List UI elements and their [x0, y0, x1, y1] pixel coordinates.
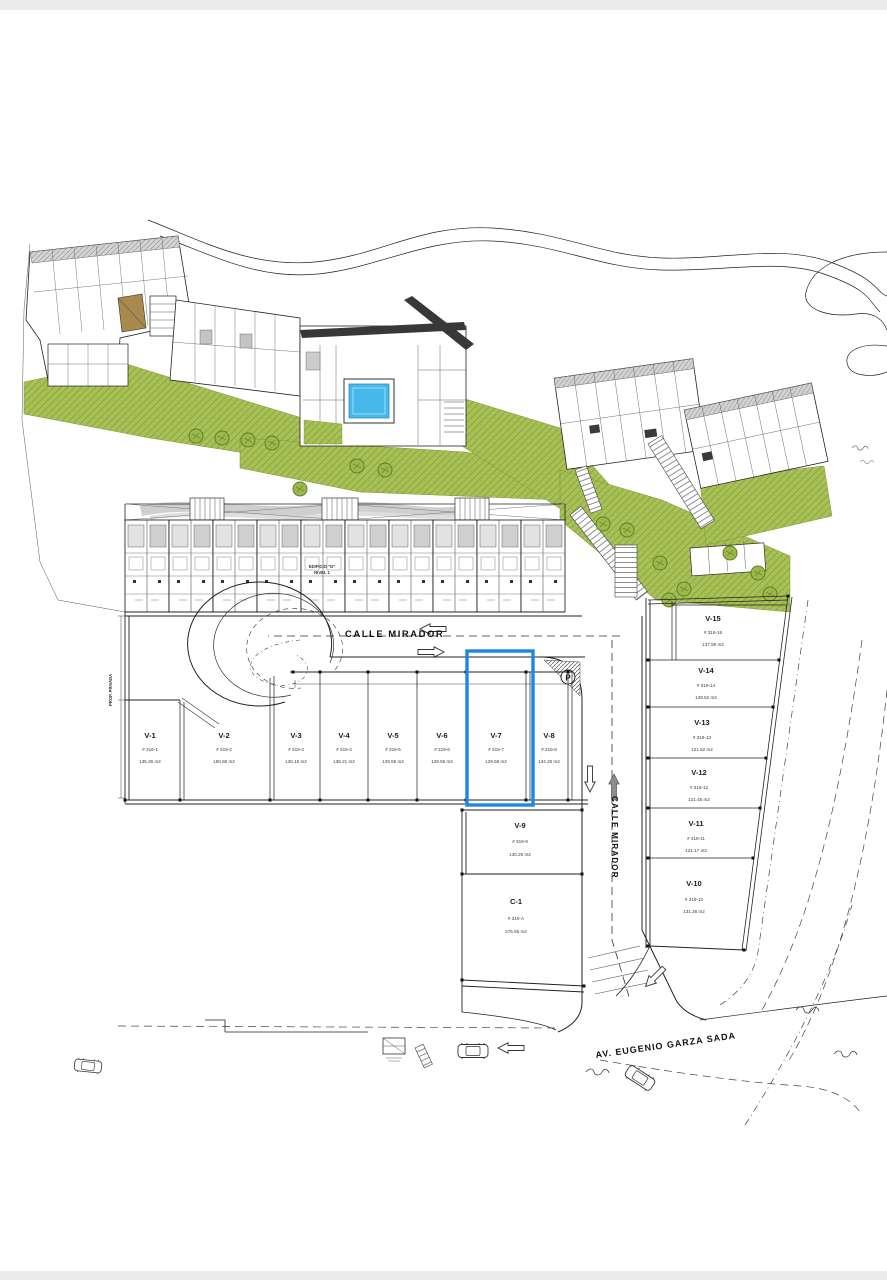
svg-text:# 319-9: # 319-9 [512, 839, 528, 844]
svg-text:# 319-12: # 319-12 [690, 785, 709, 790]
svg-text:138.21 m2: 138.21 m2 [333, 759, 355, 764]
letterbox-bars [0, 0, 887, 1280]
traffic-arrows [418, 624, 668, 1053]
lot-v1: V-1# 319-1135.36 m2 [139, 731, 161, 764]
svg-text:V-10: V-10 [686, 879, 701, 888]
lot-v10: V-10# 319-10131.36 m2 [683, 879, 705, 914]
building-left-wing [26, 236, 192, 386]
svg-text:137.59 m2: 137.59 m2 [702, 642, 724, 647]
svg-text:# 319-7: # 319-7 [488, 747, 504, 752]
lot-v9: V-9# 319-9130.25 m2 [509, 821, 531, 857]
lot-v7: V-7# 319-7129.59 m2 [485, 731, 507, 764]
svg-text:V-15: V-15 [705, 614, 720, 623]
arrow-downleft-icon [642, 964, 668, 990]
building-right-cluster-a [554, 359, 705, 470]
lot-v5: V-5# 319-5129.59 m2 [382, 731, 404, 764]
svg-text:# 319-3: # 319-3 [288, 747, 304, 752]
svg-text:# 319-1: # 319-1 [142, 747, 158, 752]
svg-text:V-1: V-1 [144, 731, 155, 740]
svg-text:V-5: V-5 [387, 731, 398, 740]
lot-v14: V-14# 319-14128.52 m2 [695, 666, 717, 700]
svg-text:# 319-10: # 319-10 [685, 897, 704, 902]
svg-text:# 319-2: # 319-2 [216, 747, 232, 752]
building-mid-left [170, 300, 300, 396]
svg-text:131.36 m2: 131.36 m2 [683, 909, 705, 914]
survey-dots [124, 595, 790, 988]
site-plan-drawing: EDIFICIO "D" NIVEL 1 P [0, 0, 887, 1280]
lot-c1: C-1# 319-A275.55 m2 [505, 897, 527, 934]
svg-text:# 319-4: # 319-4 [336, 747, 352, 752]
arrow-right-icon [418, 647, 444, 657]
svg-text:V-6: V-6 [436, 731, 447, 740]
lot-labels: V-1# 319-1135.36 m2 V-2# 319-2180.86 m2 … [139, 614, 724, 934]
calle-mirador-vertical-label: CALLE MIRADOR [610, 796, 619, 879]
car-icon [458, 1043, 488, 1059]
svg-text:129.59 m2: 129.59 m2 [485, 759, 507, 764]
svg-text:V-8: V-8 [543, 731, 554, 740]
lot-v3: V-3# 319-3130.15 m2 [285, 731, 307, 764]
lot-v2: V-2# 319-2180.86 m2 [213, 731, 235, 764]
svg-text:135.36 m2: 135.36 m2 [139, 759, 161, 764]
svg-text:129.59 m2: 129.59 m2 [382, 759, 404, 764]
lot-v6: V-6# 319-6129.59 m2 [431, 731, 453, 764]
svg-text:121.45 m2: 121.45 m2 [688, 797, 710, 802]
svg-text:V-13: V-13 [694, 718, 709, 727]
svg-text:180.86 m2: 180.86 m2 [213, 759, 235, 764]
vehicles [74, 1043, 657, 1093]
lot-v8: V-8# 319-8134.25 m2 [538, 731, 560, 764]
svg-text:# 319-5: # 319-5 [385, 747, 401, 752]
svg-text:121.17 m2: 121.17 m2 [685, 848, 707, 853]
lot-v15: V-15# 319-15137.59 m2 [702, 614, 724, 647]
svg-text:130.15 m2: 130.15 m2 [285, 759, 307, 764]
prop-privada-label: PROP. PRIVADA [108, 674, 113, 706]
lot-v4: V-4# 319-4138.21 m2 [333, 731, 355, 764]
arrow-down-icon [585, 766, 595, 792]
svg-text:V-11: V-11 [688, 819, 703, 828]
svg-text:# 319-11: # 319-11 [687, 836, 705, 841]
svg-text:130.25 m2: 130.25 m2 [509, 852, 531, 857]
svg-text:V-9: V-9 [514, 821, 525, 830]
svg-text:# 319-6: # 319-6 [434, 747, 450, 752]
svg-text:128.52 m2: 128.52 m2 [695, 695, 717, 700]
svg-text:134.25 m2: 134.25 m2 [538, 759, 560, 764]
lot-v12: V-12# 319-12121.45 m2 [688, 768, 710, 802]
calle-mirador-horizontal-label: CALLE MIRADOR [345, 629, 444, 640]
svg-text:V-14: V-14 [698, 666, 714, 675]
svg-text:# 319-15: # 319-15 [704, 630, 723, 635]
svg-text:# 319-13: # 319-13 [693, 735, 712, 740]
site-plan-page: EDIFICIO "D" NIVEL 1 P [0, 0, 887, 1280]
arrow-entry-icon [498, 1043, 524, 1053]
svg-text:V-3: V-3 [290, 731, 301, 740]
svg-text:EDIFICIO "D": EDIFICIO "D" [309, 564, 335, 569]
svg-text:NIVEL 1: NIVEL 1 [314, 570, 330, 575]
svg-text:V-7: V-7 [490, 731, 501, 740]
lot-v11: V-11# 319-11121.17 m2 [685, 819, 707, 853]
townhouse-row: EDIFICIO "D" NIVEL 1 [125, 498, 565, 612]
swimming-pool [344, 379, 394, 423]
lot-v13: V-13# 319-13121.52 m2 [691, 718, 713, 752]
svg-text:C-1: C-1 [510, 897, 522, 906]
car-icon [74, 1057, 102, 1074]
lot-boundaries [118, 595, 792, 1031]
svg-text:# 319-14: # 319-14 [697, 683, 716, 688]
svg-text:V-2: V-2 [218, 731, 229, 740]
svg-text:121.52 m2: 121.52 m2 [691, 747, 713, 752]
highlighted-lot-v7[interactable] [467, 651, 533, 805]
svg-text:129.59 m2: 129.59 m2 [431, 759, 453, 764]
svg-text:V-4: V-4 [338, 731, 350, 740]
svg-text:275.55 m2: 275.55 m2 [505, 929, 527, 934]
avenue-label: AV. EUGENIO GARZA SADA [595, 1030, 737, 1060]
svg-text:# 319-A: # 319-A [508, 916, 525, 921]
svg-text:V-12: V-12 [691, 768, 706, 777]
building-center-pool-block [300, 296, 474, 446]
svg-text:# 319-8: # 319-8 [541, 747, 557, 752]
car-icon [623, 1063, 657, 1093]
